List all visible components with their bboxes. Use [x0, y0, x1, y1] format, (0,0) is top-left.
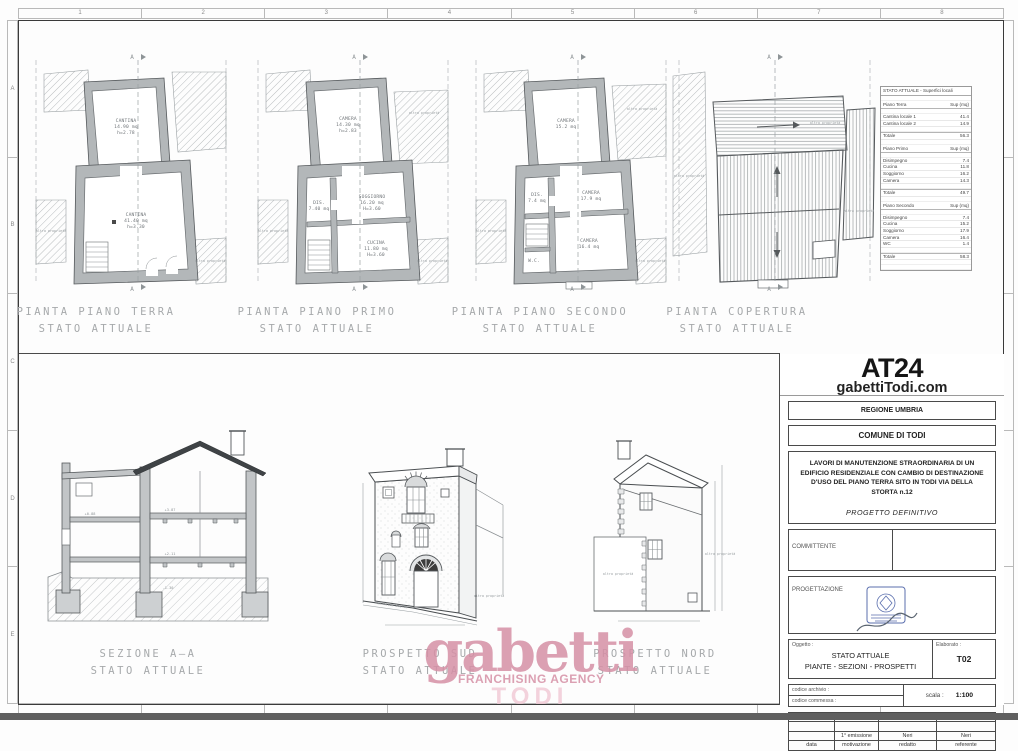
- rev-header-data: data: [789, 741, 835, 750]
- table-row: Disimpegno7.4: [881, 215, 971, 222]
- grid-col-label: 2: [142, 9, 265, 18]
- horizontal-divider: [19, 353, 779, 354]
- ruler-left: A B C D E: [7, 20, 18, 704]
- svg-text:H=3.60: H=3.60: [363, 206, 381, 212]
- signature: [857, 613, 917, 631]
- oggetto-box: Oggetto : STATO ATTUALE PIANTE - SEZIONI…: [788, 639, 996, 679]
- svg-text:14.90 mq: 14.90 mq: [114, 124, 138, 130]
- project-title: LAVORI DI MANUTENZIONE STRAORDINARIA DI …: [789, 452, 995, 501]
- codes-scale-box: codice archivio : codice commessa : scal…: [788, 684, 996, 707]
- rev-header-redatto: redatto: [879, 741, 937, 750]
- label-pianta-piano-primo: PIANTA PIANO PRIMO STATO ATTUALE: [238, 304, 397, 338]
- table-row: Cantina locale 214.9: [881, 121, 971, 128]
- svg-text:A: A: [570, 286, 574, 293]
- svg-text:41.40 mq: 41.40 mq: [124, 218, 148, 224]
- svg-text:altra proprietà: altra proprietà: [258, 229, 289, 233]
- svg-text:altra proprietà: altra proprietà: [36, 229, 67, 233]
- table-total-row: Totale58.3: [881, 253, 971, 261]
- svg-text:altra proprietà: altra proprietà: [417, 259, 448, 263]
- grid-row-label: B: [8, 158, 17, 295]
- chimney: [231, 431, 244, 455]
- svg-text:CAMERA: CAMERA: [580, 238, 598, 244]
- svg-text:A: A: [570, 54, 574, 61]
- svg-text:altra proprietà: altra proprietà: [705, 552, 736, 556]
- table-row: Disimpegno7.4: [881, 158, 971, 165]
- agency-logo-block: AT24 gabettiTodi.com: [780, 354, 1004, 396]
- surfaces-table-title: STATO ATTUALE - Superfici locali: [881, 87, 971, 96]
- table-total-row: Totale56.3: [881, 132, 971, 140]
- svg-text:DIS.: DIS.: [313, 200, 325, 206]
- svg-text:A: A: [352, 286, 356, 293]
- committente-label: COMMITTENTE: [792, 544, 836, 550]
- svg-text:A: A: [767, 54, 771, 61]
- project-phase: PROGETTO DEFINITIVO: [789, 508, 995, 522]
- svg-text:-1.30: -1.30: [163, 586, 174, 590]
- agency-code: AT24: [780, 355, 1004, 381]
- svg-text:15.2 mq: 15.2 mq: [556, 124, 577, 130]
- table-row: Soggiorno16.2: [881, 171, 971, 178]
- svg-text:CANTINA: CANTINA: [126, 212, 147, 218]
- progettazione-label: PROGETTAZIONE: [792, 587, 843, 593]
- chimney: [618, 441, 630, 459]
- svg-text:CANTINA: CANTINA: [116, 118, 137, 124]
- sheet-edge-shadow: [0, 713, 1018, 720]
- grid-col-label: 6: [635, 9, 758, 18]
- svg-text:altra proprietà: altra proprietà: [409, 111, 440, 115]
- label-pianta-piano-secondo: PIANTA PIANO SECONDO STATO ATTUALE: [452, 304, 628, 338]
- plan-piano-primo-drawing: A A CAMERA 14.30 mq h=2.83 SOGGIORNO 16.…: [252, 52, 457, 292]
- grid-col-label: 7: [758, 9, 881, 18]
- svg-text:H=3.60: H=3.60: [367, 252, 385, 258]
- rev-header-referente: referente: [937, 741, 995, 750]
- svg-text:7.40 mq: 7.40 mq: [309, 206, 330, 212]
- svg-text:altra proprietà: altra proprietà: [810, 121, 841, 125]
- scala-label: scala :: [926, 692, 944, 699]
- grid-col-label: 1: [19, 9, 142, 18]
- rev-redatto-value: Neri: [879, 732, 937, 742]
- table-row: Camera16.4: [881, 235, 971, 242]
- label-sezione: SEZIONE A—A STATO ATTUALE: [91, 646, 206, 680]
- svg-text:CUCINA: CUCINA: [367, 240, 385, 246]
- grid-row-label: E: [8, 567, 17, 703]
- svg-text:DIS.: DIS.: [531, 192, 543, 198]
- svg-text:14.30 mq: 14.30 mq: [336, 122, 360, 128]
- comune-box: COMUNE DI TODI: [788, 425, 996, 446]
- svg-text:CAMERA: CAMERA: [557, 118, 575, 124]
- svg-text:A: A: [130, 54, 134, 61]
- regione-box: REGIONE UMBRIA: [788, 401, 996, 420]
- svg-text:A: A: [130, 286, 134, 293]
- committente-box: COMMITTENTE: [788, 529, 996, 571]
- svg-text:+3.87: +3.87: [165, 508, 176, 512]
- roof: [614, 455, 708, 488]
- table-total-row: Totale49.7: [881, 189, 971, 197]
- sezione-drawing: +3.87 +2.11 -1.30 +0.88: [48, 425, 268, 630]
- label-pianta-piano-terra: PIANTA PIANO TERRA STATO ATTUALE: [17, 304, 176, 338]
- prospetto-sud-drawing: Via della Storta altra proprietà: [355, 425, 505, 630]
- surfaces-table: STATO ATTUALE - Superfici locali Piano T…: [880, 86, 972, 271]
- svg-text:h=2.78: h=2.78: [117, 130, 135, 136]
- table-row: Cucina15.2: [881, 221, 971, 228]
- table-row: WC1.4: [881, 241, 971, 248]
- svg-text:+2.11: +2.11: [165, 552, 176, 556]
- oggetto-label: Oggetto :: [792, 642, 813, 650]
- drawing-sheet: { "frame": { "cols": ["1","2","3","4","5…: [0, 0, 1018, 720]
- plan-piano-terra-drawing: A A CANTINA 14.90 mq h=2.78 CANTINA 41.4…: [30, 52, 235, 292]
- table-row: Cantina locale 141.4: [881, 114, 971, 121]
- svg-text:16.20 mq: 16.20 mq: [360, 200, 384, 206]
- svg-text:altra proprietà: altra proprietà: [635, 259, 666, 263]
- elaborato-value: T02: [957, 654, 972, 664]
- elaborato-label: Elaborato :: [936, 642, 961, 648]
- codice-archivio-label: codice archivio :: [789, 685, 903, 696]
- svg-text:h=3.30: h=3.30: [127, 224, 145, 230]
- plan-piano-secondo-drawing: A A CAMERA 15.2 mq CAMERA 17.9 mq CAMERA…: [470, 52, 675, 292]
- svg-text:CAMERA: CAMERA: [582, 190, 600, 196]
- project-title-box: LAVORI DI MANUTENZIONE STRAORDINARIA DI …: [788, 451, 996, 524]
- svg-text:+0.88: +0.88: [85, 512, 96, 516]
- label-pianta-copertura: PIANTA COPERTURA STATO ATTUALE: [666, 304, 807, 338]
- plan-copertura-drawing: A A altra proprietà altra proprietà altr…: [665, 52, 880, 292]
- ruler-top: 1 2 3 4 5 6 7 8: [18, 8, 1004, 19]
- grid-col-label: 3: [265, 9, 388, 18]
- scala-value: 1:100: [956, 692, 973, 699]
- svg-text:CAMERA: CAMERA: [339, 116, 357, 122]
- grid-col-label: 5: [512, 9, 635, 18]
- table-row: Camera14.3: [881, 178, 971, 185]
- svg-text:A: A: [352, 54, 356, 61]
- svg-text:altra proprietà: altra proprietà: [603, 572, 634, 576]
- svg-text:altra proprietà: altra proprietà: [476, 229, 507, 233]
- grid-row-label: A: [8, 21, 17, 158]
- title-block: AT24 gabettiTodi.com REGIONE UMBRIA COMU…: [780, 354, 1004, 705]
- grid-col-label: 4: [388, 9, 511, 18]
- svg-text:11.80 mq: 11.80 mq: [364, 246, 388, 252]
- gabetti-city: TODI: [398, 683, 662, 711]
- svg-text:altra proprietà: altra proprietà: [674, 174, 705, 178]
- codice-commessa-label: codice commessa :: [789, 696, 903, 706]
- agency-website: gabettiTodi.com: [780, 381, 1004, 395]
- gabetti-brand-text: gabetti: [398, 626, 662, 678]
- gabetti-watermark-logo: gabetti FRANCHISING AGENCY TODI: [398, 626, 662, 711]
- grid-col-label: 8: [881, 9, 1003, 18]
- svg-text:h=2.83: h=2.83: [339, 128, 357, 134]
- svg-text:W.C.: W.C.: [528, 258, 540, 264]
- table-row: Soggiorno17.9: [881, 228, 971, 235]
- professional-stamp: [857, 585, 917, 635]
- svg-text:altra proprietà: altra proprietà: [627, 107, 658, 111]
- doorway: [120, 166, 142, 180]
- grid-row-label: D: [8, 431, 17, 568]
- prospetto-nord-drawing: altra proprietà altra proprietà: [588, 425, 728, 630]
- svg-text:altra proprietà: altra proprietà: [195, 259, 226, 263]
- chimney: [447, 449, 463, 466]
- ruler-right: [1003, 20, 1014, 704]
- oggetto-line1: STATO ATTUALE: [832, 650, 890, 661]
- rev-referente-value: Neri: [937, 732, 995, 742]
- svg-text:A: A: [767, 286, 771, 293]
- svg-text:17.9 mq: 17.9 mq: [581, 196, 602, 202]
- oggetto-line2: PIANTE - SEZIONI - PROSPETTI: [805, 661, 916, 672]
- svg-text:altra proprietà: altra proprietà: [474, 594, 505, 598]
- progettazione-box: PROGETTAZIONE: [788, 576, 996, 634]
- svg-text:7.4 mq: 7.4 mq: [528, 198, 546, 204]
- svg-text:SOGGIORNO: SOGGIORNO: [359, 194, 386, 200]
- svg-text:altra proprietà: altra proprietà: [844, 209, 875, 213]
- rev-header-motivazione: motivazione: [835, 741, 879, 750]
- svg-text:16.4 mq: 16.4 mq: [579, 244, 600, 250]
- rev-emissione: 1° emissione: [835, 732, 879, 742]
- entrance-door: [414, 571, 438, 607]
- table-row: Cucina11.8: [881, 164, 971, 171]
